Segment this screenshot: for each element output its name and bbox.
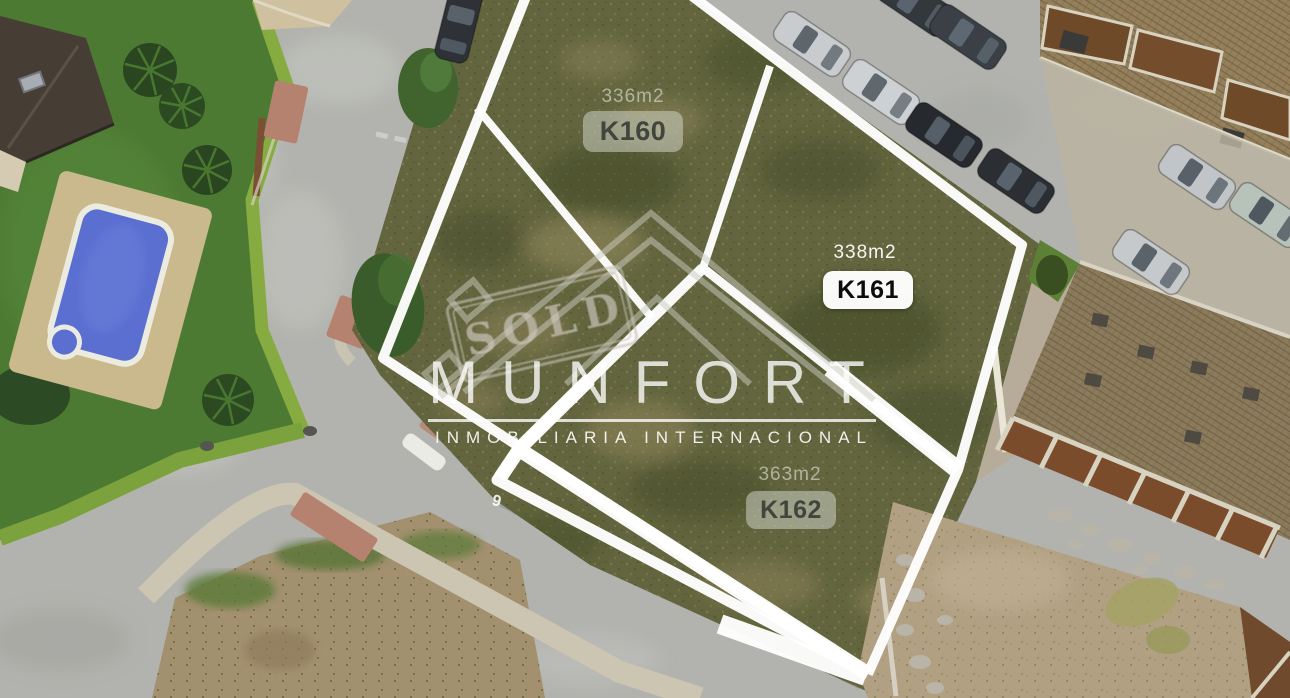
small-tree	[1036, 255, 1068, 295]
plot-chip-k160: K160	[583, 111, 683, 152]
brand-watermark: MUNFORT INMOBILIARIA INTERNACIONAL	[412, 352, 892, 448]
plot-area-k160: 336m2	[583, 86, 683, 108]
plot-chip-k161: K161	[823, 271, 913, 309]
plot-area-k161: 338m2	[818, 242, 912, 264]
listing-image: SOLD MUNFORT INMOBILIARIA INTERNACIONAL …	[0, 0, 1290, 698]
plot-area-k162: 363m2	[743, 464, 837, 486]
brand-rule	[428, 419, 876, 422]
brand-name: MUNFORT	[424, 352, 892, 414]
plot-chip-k162: K162	[746, 491, 836, 529]
brand-tagline: INMOBILIARIA INTERNACIONAL	[416, 428, 892, 448]
